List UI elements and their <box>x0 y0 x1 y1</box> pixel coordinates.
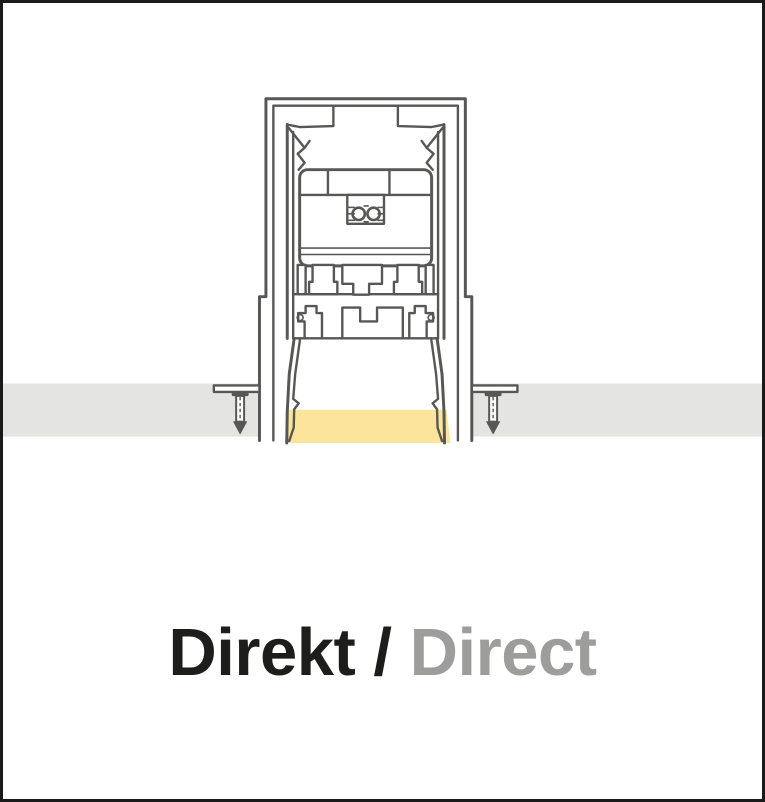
terminal-block <box>347 195 384 224</box>
luminaire-cross-section-diagram <box>3 3 762 469</box>
caption-primary-label: Direkt / <box>168 615 391 690</box>
trim-flange-left <box>214 385 260 391</box>
trim-flange-right <box>472 385 518 391</box>
diagram-frame: Direkt / Direct <box>0 0 765 802</box>
light-emission-glow <box>285 410 451 443</box>
driver-compartment <box>300 170 432 266</box>
extrusion-interlock-upper <box>293 265 438 295</box>
caption-secondary-label: Direct <box>410 615 597 690</box>
caption: Direkt / Direct <box>3 614 762 691</box>
